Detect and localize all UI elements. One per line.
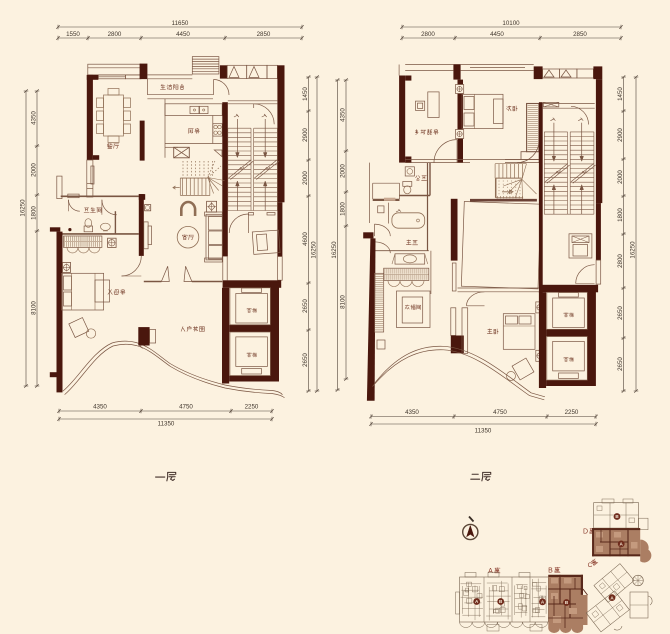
svg-text:4350: 4350 xyxy=(31,111,38,125)
svg-text:4350: 4350 xyxy=(340,108,347,122)
svg-text:2800: 2800 xyxy=(108,31,122,38)
svg-text:8100: 8100 xyxy=(31,301,38,315)
svg-text:4350: 4350 xyxy=(405,409,419,416)
svg-text:16250: 16250 xyxy=(331,241,338,259)
svg-text:16250: 16250 xyxy=(20,199,27,217)
svg-text:2000: 2000 xyxy=(31,163,38,177)
svg-text:2850: 2850 xyxy=(257,31,271,38)
svg-text:2800: 2800 xyxy=(617,254,624,268)
svg-text:8100: 8100 xyxy=(340,295,347,309)
svg-text:16250: 16250 xyxy=(311,241,318,259)
svg-text:2650: 2650 xyxy=(617,306,624,320)
svg-text:D: D xyxy=(583,529,588,536)
svg-text:2900: 2900 xyxy=(617,128,624,142)
svg-text:2000: 2000 xyxy=(617,170,624,184)
svg-text:2800: 2800 xyxy=(421,31,435,38)
svg-text:2650: 2650 xyxy=(617,357,624,371)
svg-text:2650: 2650 xyxy=(302,299,309,313)
svg-text:11350: 11350 xyxy=(475,428,492,435)
svg-text:2650: 2650 xyxy=(302,353,309,367)
svg-text:1800: 1800 xyxy=(340,202,347,216)
svg-text:A: A xyxy=(488,568,493,575)
svg-text:B: B xyxy=(548,568,553,575)
svg-text:2250: 2250 xyxy=(565,409,579,416)
svg-text:4600: 4600 xyxy=(302,232,309,246)
svg-text:1800: 1800 xyxy=(617,208,624,222)
svg-text:16250: 16250 xyxy=(630,241,637,259)
svg-text:4450: 4450 xyxy=(176,31,190,38)
svg-text:1450: 1450 xyxy=(617,87,624,101)
svg-text:2850: 2850 xyxy=(573,31,587,38)
svg-text:1800: 1800 xyxy=(31,206,38,220)
svg-text:1550: 1550 xyxy=(66,31,80,38)
svg-text:4750: 4750 xyxy=(493,409,507,416)
svg-text:4750: 4750 xyxy=(179,404,193,411)
svg-text:1450: 1450 xyxy=(302,87,309,101)
svg-text:11650: 11650 xyxy=(172,20,189,27)
svg-text:C: C xyxy=(588,562,593,569)
svg-text:10100: 10100 xyxy=(502,20,520,27)
svg-text:4350: 4350 xyxy=(93,404,107,411)
svg-text:4450: 4450 xyxy=(490,31,504,38)
svg-text:2000: 2000 xyxy=(302,171,309,185)
svg-text:2250: 2250 xyxy=(245,404,259,411)
svg-text:11350: 11350 xyxy=(158,421,175,428)
svg-text:2900: 2900 xyxy=(302,128,309,142)
svg-text:2000: 2000 xyxy=(340,164,347,178)
